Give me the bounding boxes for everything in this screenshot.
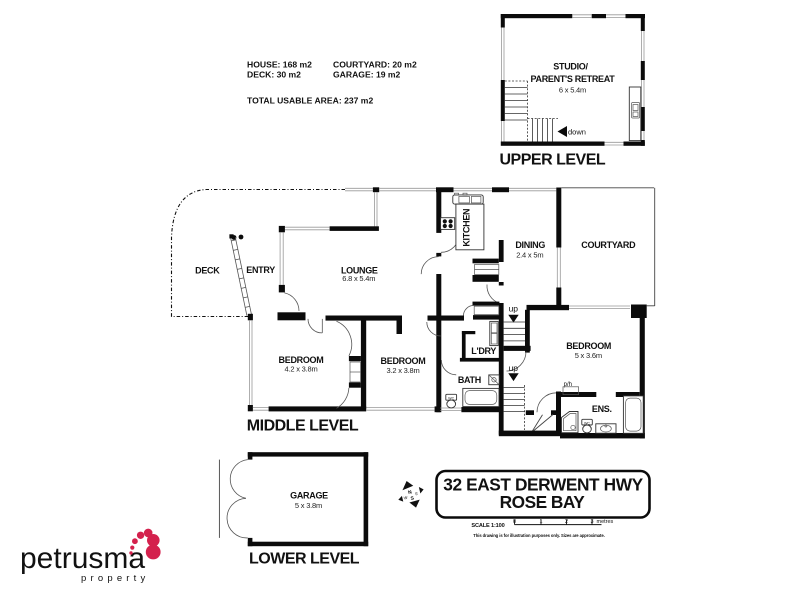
svg-text:6 x 5.4m: 6 x 5.4m — [559, 86, 586, 95]
svg-text:4.2 x 3.8m: 4.2 x 3.8m — [284, 365, 317, 374]
svg-text:WC: WC — [584, 422, 590, 426]
svg-text:COURTYARD: 20 m2: COURTYARD: 20 m2 — [333, 60, 417, 70]
svg-text:UPPER LEVEL: UPPER LEVEL — [500, 152, 606, 169]
svg-text:HOUSE: 168 m2: HOUSE: 168 m2 — [247, 60, 312, 70]
svg-text:WC: WC — [448, 397, 454, 401]
svg-text:up: up — [509, 303, 519, 313]
svg-text:DINING: DINING — [515, 240, 545, 250]
svg-text:DECK: DECK — [195, 266, 220, 276]
svg-text:ENTRY: ENTRY — [246, 265, 275, 275]
svg-text:5 x 3.6m: 5 x 3.6m — [575, 351, 602, 360]
svg-text:BEDROOM: BEDROOM — [381, 356, 426, 366]
svg-text:ROSE BAY: ROSE BAY — [500, 492, 586, 512]
svg-text:property: property — [81, 573, 149, 584]
svg-text:LOWER LEVEL: LOWER LEVEL — [249, 551, 360, 568]
svg-text:BEDROOM: BEDROOM — [279, 355, 324, 365]
svg-text:MIDDLE LEVEL: MIDDLE LEVEL — [247, 418, 359, 435]
svg-text:L'DRY: L'DRY — [471, 346, 496, 356]
svg-text:GARAGE: 19 m2: GARAGE: 19 m2 — [333, 70, 401, 80]
svg-text:2: 2 — [565, 519, 568, 525]
svg-text:1: 1 — [539, 519, 542, 525]
svg-text:5 x 3.8m: 5 x 3.8m — [295, 501, 322, 510]
svg-text:6.8 x 5.4m: 6.8 x 5.4m — [342, 274, 375, 283]
svg-text:GARAGE: GARAGE — [290, 490, 328, 500]
svg-text:This drawing is for illustrati: This drawing is for illustration purpose… — [473, 533, 604, 538]
svg-text:0: 0 — [513, 519, 516, 525]
svg-text:BATH: BATH — [458, 375, 481, 385]
svg-text:ENS.: ENS. — [592, 404, 612, 414]
svg-text:3: 3 — [590, 519, 593, 525]
svg-text:TOTAL USABLE AREA: 237 m2: TOTAL USABLE AREA: 237 m2 — [247, 96, 373, 106]
svg-text:3.2 x 3.8m: 3.2 x 3.8m — [386, 366, 419, 375]
svg-text:up: up — [509, 363, 519, 373]
svg-text:BEDROOM: BEDROOM — [566, 341, 611, 351]
svg-text:KITCHEN: KITCHEN — [462, 209, 472, 247]
svg-text:SCALE 1:100: SCALE 1:100 — [471, 523, 504, 529]
svg-text:DECK: 30 m2: DECK: 30 m2 — [247, 70, 301, 80]
svg-text:COURTYARD: COURTYARD — [581, 240, 636, 250]
svg-text:metres: metres — [597, 519, 614, 525]
svg-text:PARENT'S RETREAT: PARENT'S RETREAT — [530, 74, 615, 84]
svg-text:down: down — [568, 127, 586, 136]
svg-text:STUDIO/: STUDIO/ — [553, 61, 588, 71]
svg-text:2.4 x 5m: 2.4 x 5m — [516, 250, 543, 259]
svg-text:petrusma: petrusma — [20, 542, 145, 575]
